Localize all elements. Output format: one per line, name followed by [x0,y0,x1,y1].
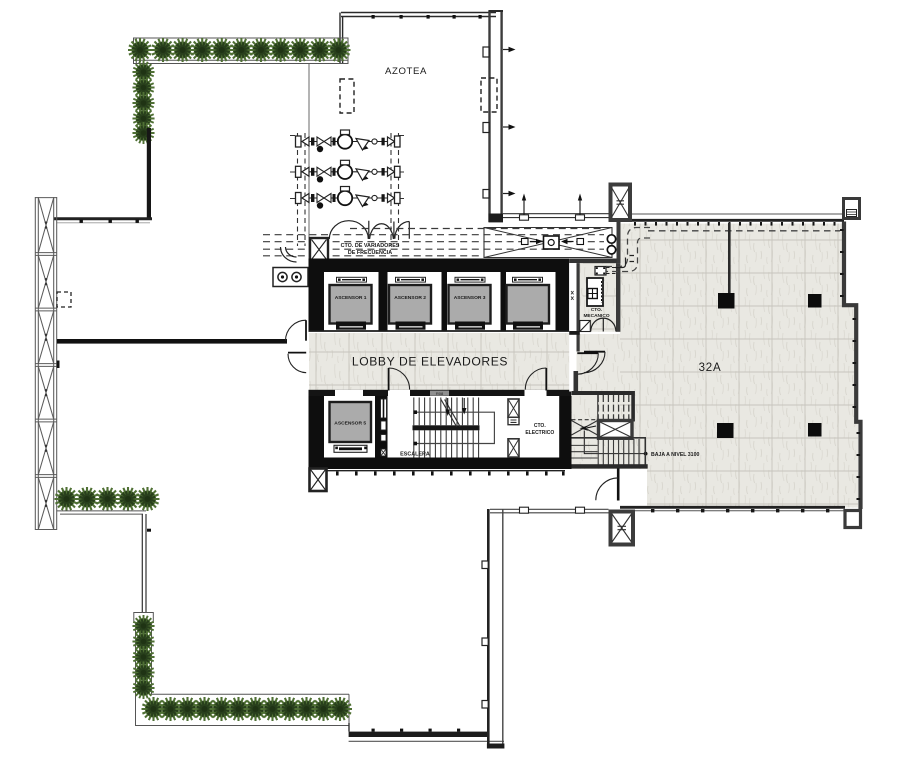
svg-text:ELECTRICO: ELECTRICO [525,430,554,436]
svg-text:ASCENSOR 3: ASCENSOR 3 [454,295,486,301]
svg-text:R08: R08 [436,391,444,396]
svg-text:ASCENSOR 5: ASCENSOR 5 [334,421,366,427]
svg-text:CTO. DE VARIADORES: CTO. DE VARIADORES [341,243,400,249]
svg-text:CTO.: CTO. [534,423,546,429]
svg-text:ASCENSOR 2: ASCENSOR 2 [394,295,426,301]
svg-text:DE FRECUENCIA: DE FRECUENCIA [348,250,392,256]
svg-text:LOBBY DE ELEVADORES: LOBBY DE ELEVADORES [352,355,508,369]
svg-text:ESCALERA: ESCALERA [400,451,430,457]
svg-text:32A: 32A [699,362,722,374]
svg-text:BAJA A NIVEL 3100: BAJA A NIVEL 3100 [651,452,699,458]
svg-text:CTO.: CTO. [591,307,602,313]
svg-text:AZOTEA: AZOTEA [385,66,427,77]
svg-text:ASCENSOR 1: ASCENSOR 1 [335,295,367,301]
